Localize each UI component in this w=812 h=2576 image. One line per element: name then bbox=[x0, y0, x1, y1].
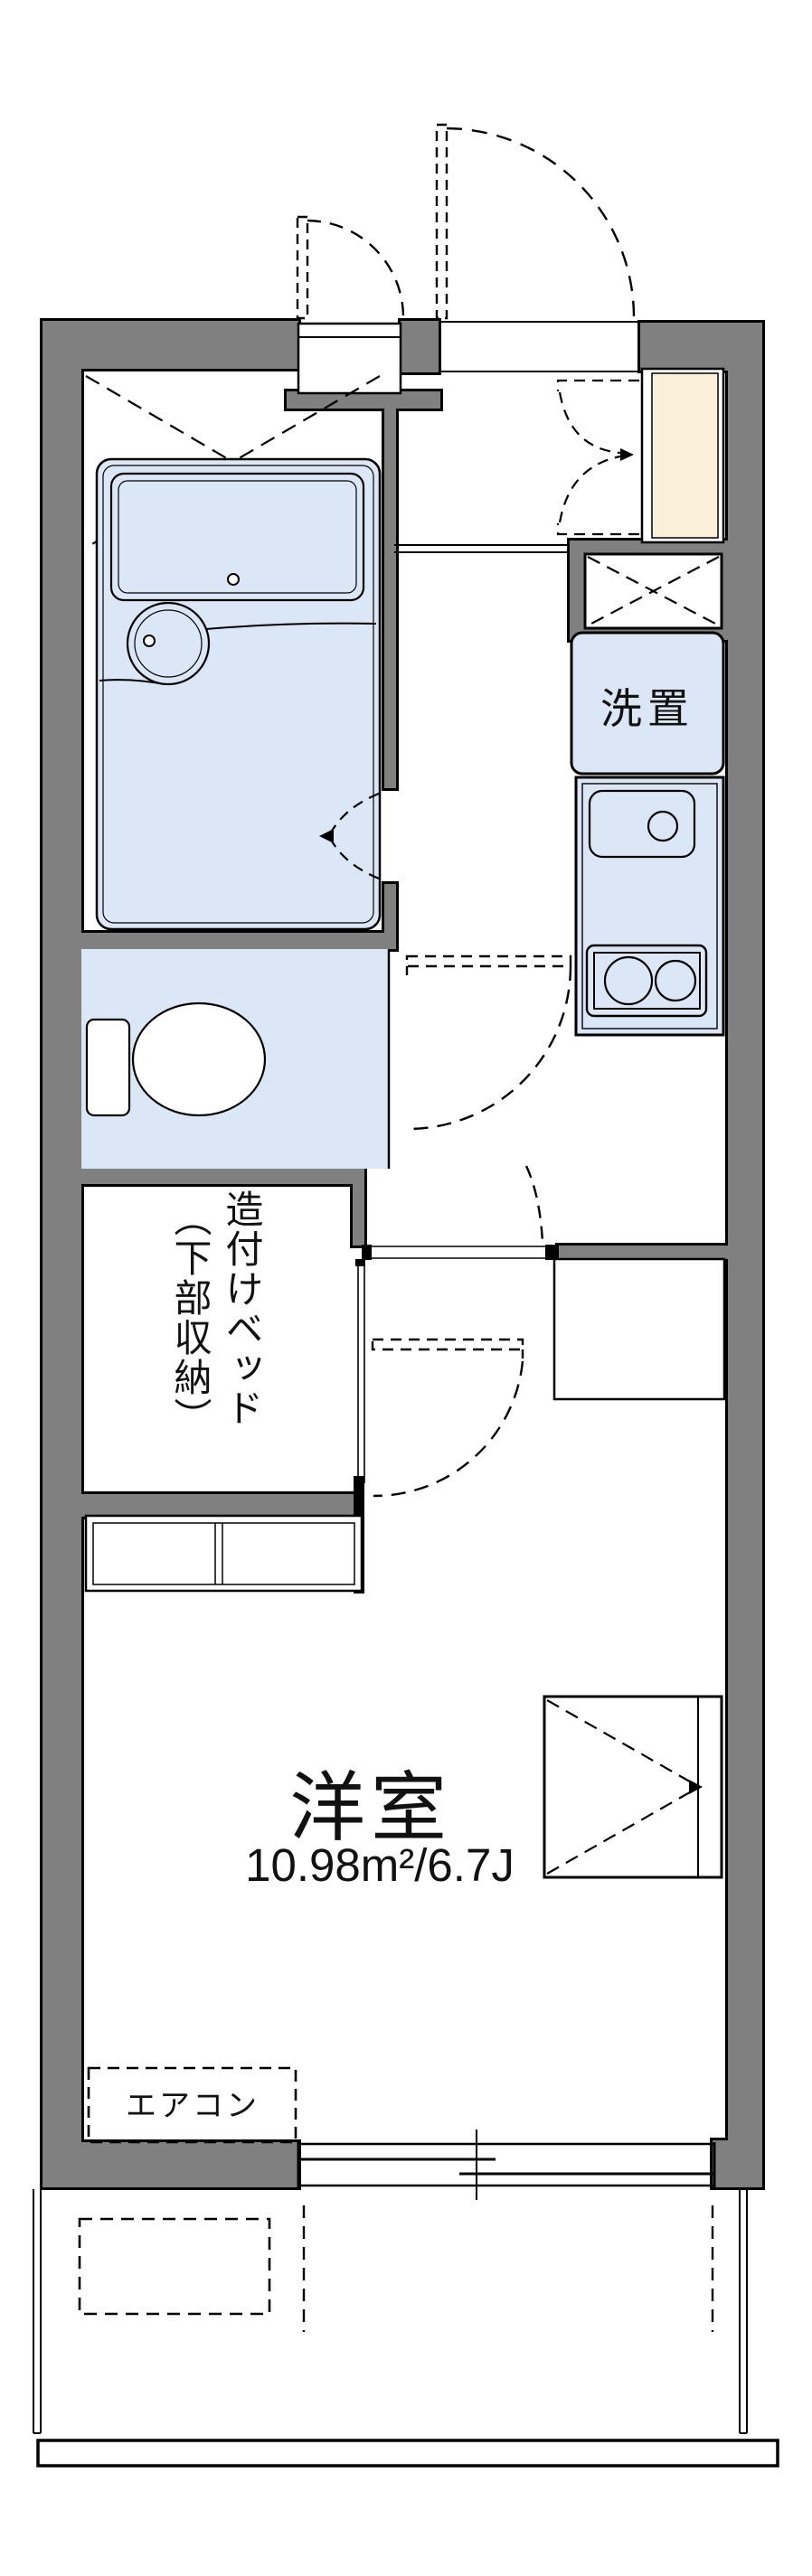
top-wall-right bbox=[640, 323, 762, 371]
porch-floor bbox=[298, 324, 401, 393]
right-wall bbox=[728, 323, 762, 2187]
toilet-bed-stub bbox=[353, 1169, 364, 1246]
built-in-bed-label-line2: （下部収納） bbox=[165, 1189, 216, 1501]
balcony-edge-bar bbox=[38, 2440, 778, 2466]
built-in-bed-label-line1: 造付けベッド bbox=[216, 1189, 268, 1501]
kitchen-south-wall bbox=[558, 1246, 728, 1259]
fridge-space bbox=[554, 1259, 724, 1399]
south-window bbox=[298, 2129, 714, 2200]
bottom-wall-right bbox=[713, 2140, 762, 2187]
floorplan-canvas: 洗置 造付けベッド （下部収納） 洋室 10.98m²/6.7J エアコン bbox=[0, 0, 812, 2576]
interior-doors bbox=[373, 956, 571, 1496]
kitchen bbox=[576, 777, 723, 1035]
floorplan-drawing bbox=[0, 0, 812, 2576]
washer-space-label: 洗置 bbox=[571, 676, 723, 736]
porch-storage-door-leaf bbox=[297, 217, 307, 318]
bath-hall-wall-upper bbox=[384, 407, 396, 788]
wash-basin bbox=[127, 603, 209, 684]
room-area-label: 10.98m²/6.7J bbox=[190, 1838, 570, 1892]
toilet-door-arc bbox=[408, 966, 571, 1129]
bath-toilet-wall bbox=[81, 933, 396, 949]
shoe-cabinet-face bbox=[652, 373, 718, 538]
kitchen-counter bbox=[576, 777, 723, 1035]
balcony-equipment-box bbox=[80, 2219, 269, 2314]
entrance-door-leaf bbox=[437, 125, 447, 318]
basin-drain bbox=[144, 635, 155, 646]
toilet-room bbox=[81, 949, 389, 1169]
room-door-arc bbox=[373, 1361, 523, 1496]
balcony bbox=[33, 2189, 778, 2466]
bed-shelf bbox=[86, 1516, 362, 1591]
shoe-cabinet-door-arrow bbox=[620, 448, 634, 461]
entrance-left-post bbox=[401, 321, 439, 372]
shoe-cabinet bbox=[558, 369, 723, 542]
corridor bbox=[354, 1245, 559, 1594]
bath-unit bbox=[97, 459, 380, 929]
top-wall-left bbox=[42, 321, 298, 369]
hall-door-arc-fragment bbox=[526, 1166, 543, 1242]
room-door-leaf bbox=[373, 1340, 523, 1349]
left-wall bbox=[42, 321, 81, 2187]
entrance-doors bbox=[297, 125, 634, 318]
aircon-label: エアコン bbox=[90, 2081, 295, 2125]
bathroom bbox=[86, 376, 380, 929]
bathtub-drain bbox=[228, 574, 239, 585]
toilet-door-leaf bbox=[407, 956, 571, 966]
built-in-bed-label: 造付けベッド （下部収納） bbox=[165, 1189, 268, 1501]
toilet-bed-wall bbox=[81, 1169, 364, 1184]
porch-storage-door-arc bbox=[307, 221, 403, 317]
toilet-bowl bbox=[133, 1003, 265, 1115]
genkan-storage-box bbox=[585, 554, 722, 628]
closet bbox=[544, 1697, 722, 1877]
bottom-wall-left bbox=[81, 2142, 298, 2187]
toilet-tank bbox=[87, 1020, 129, 1115]
entrance-door-arc bbox=[447, 128, 634, 317]
bath-hall-wall-lower bbox=[384, 884, 396, 933]
